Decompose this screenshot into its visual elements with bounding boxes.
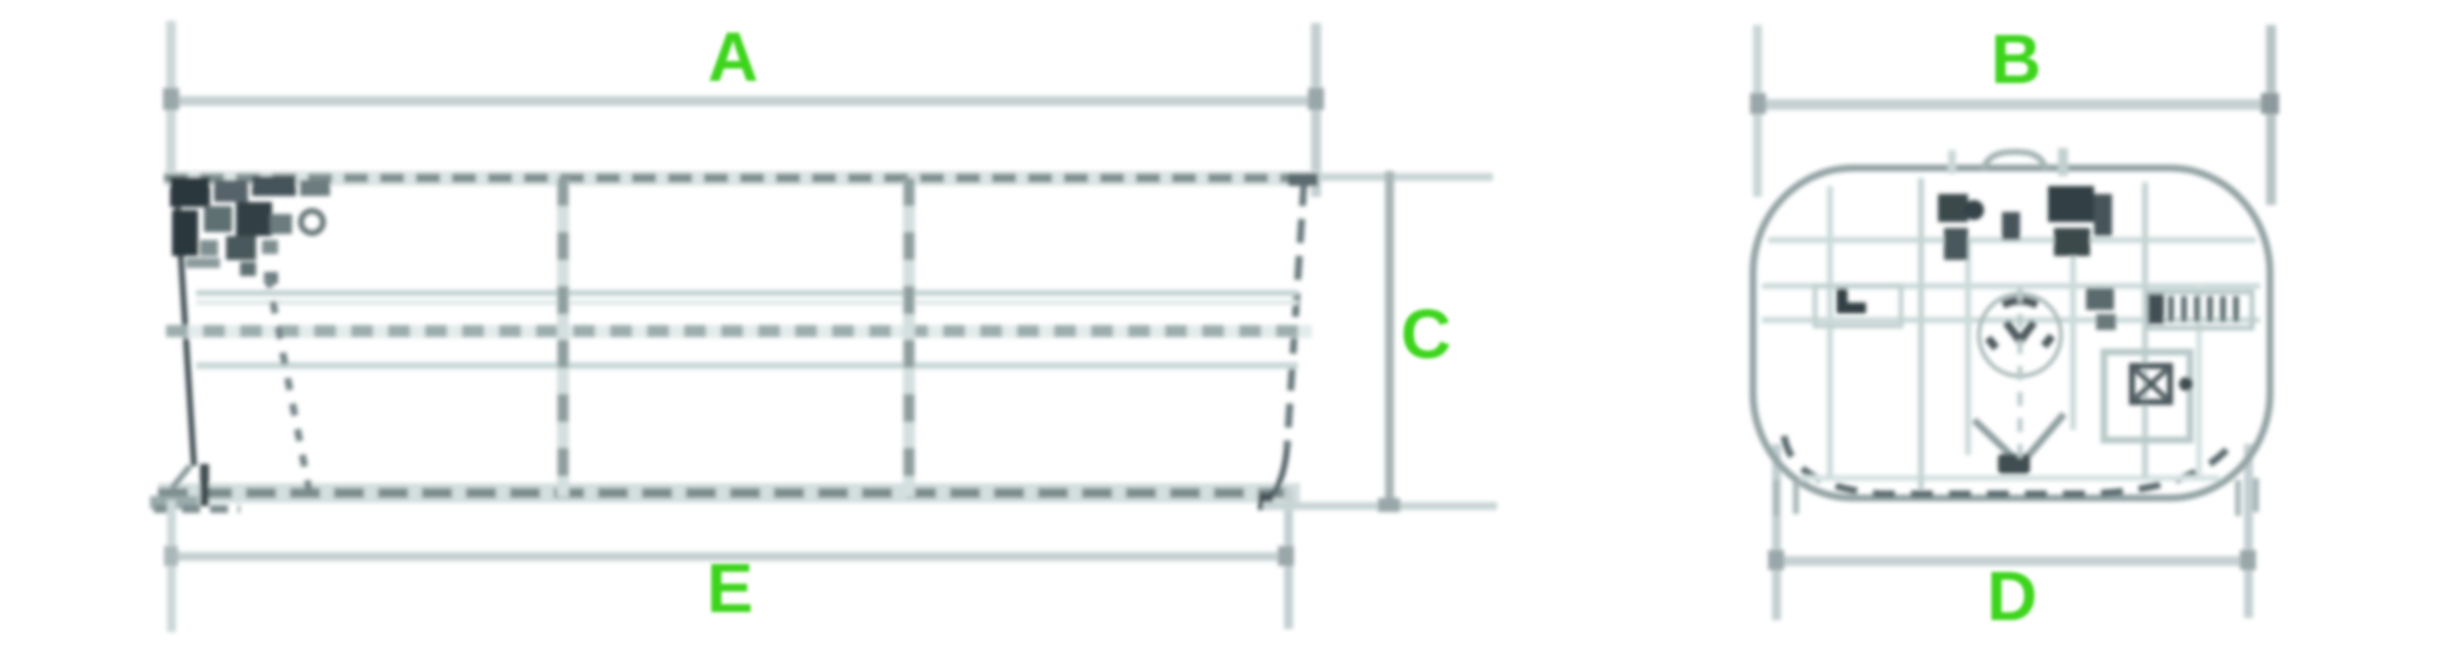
svg-text:C: C (1401, 295, 1452, 373)
svg-text:A: A (708, 18, 759, 96)
svg-text:D: D (1987, 557, 2038, 635)
svg-text:B: B (1991, 20, 2042, 98)
svg-text:E: E (707, 549, 754, 627)
